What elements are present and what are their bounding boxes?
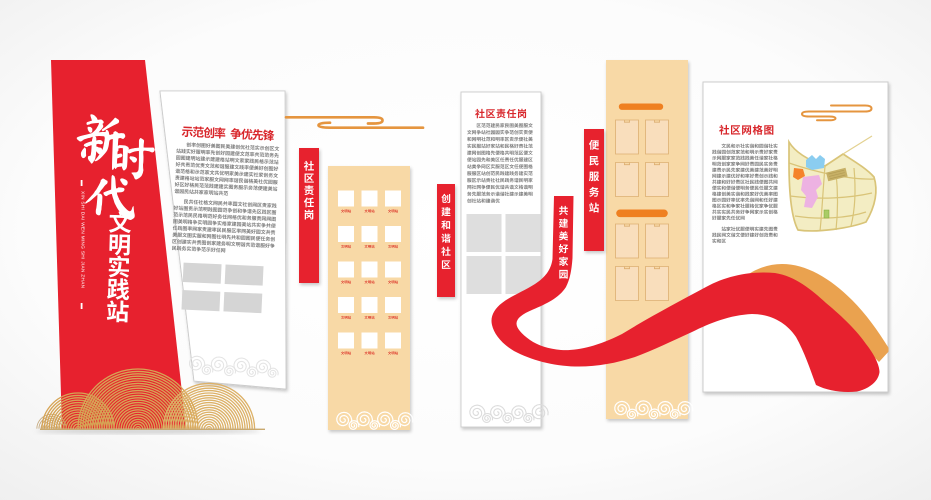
svg-text:XIN SHI DAI WEN MING SHI JIAN: XIN SHI DAI WEN MING SHI JIAN ZHAN <box>81 191 86 288</box>
